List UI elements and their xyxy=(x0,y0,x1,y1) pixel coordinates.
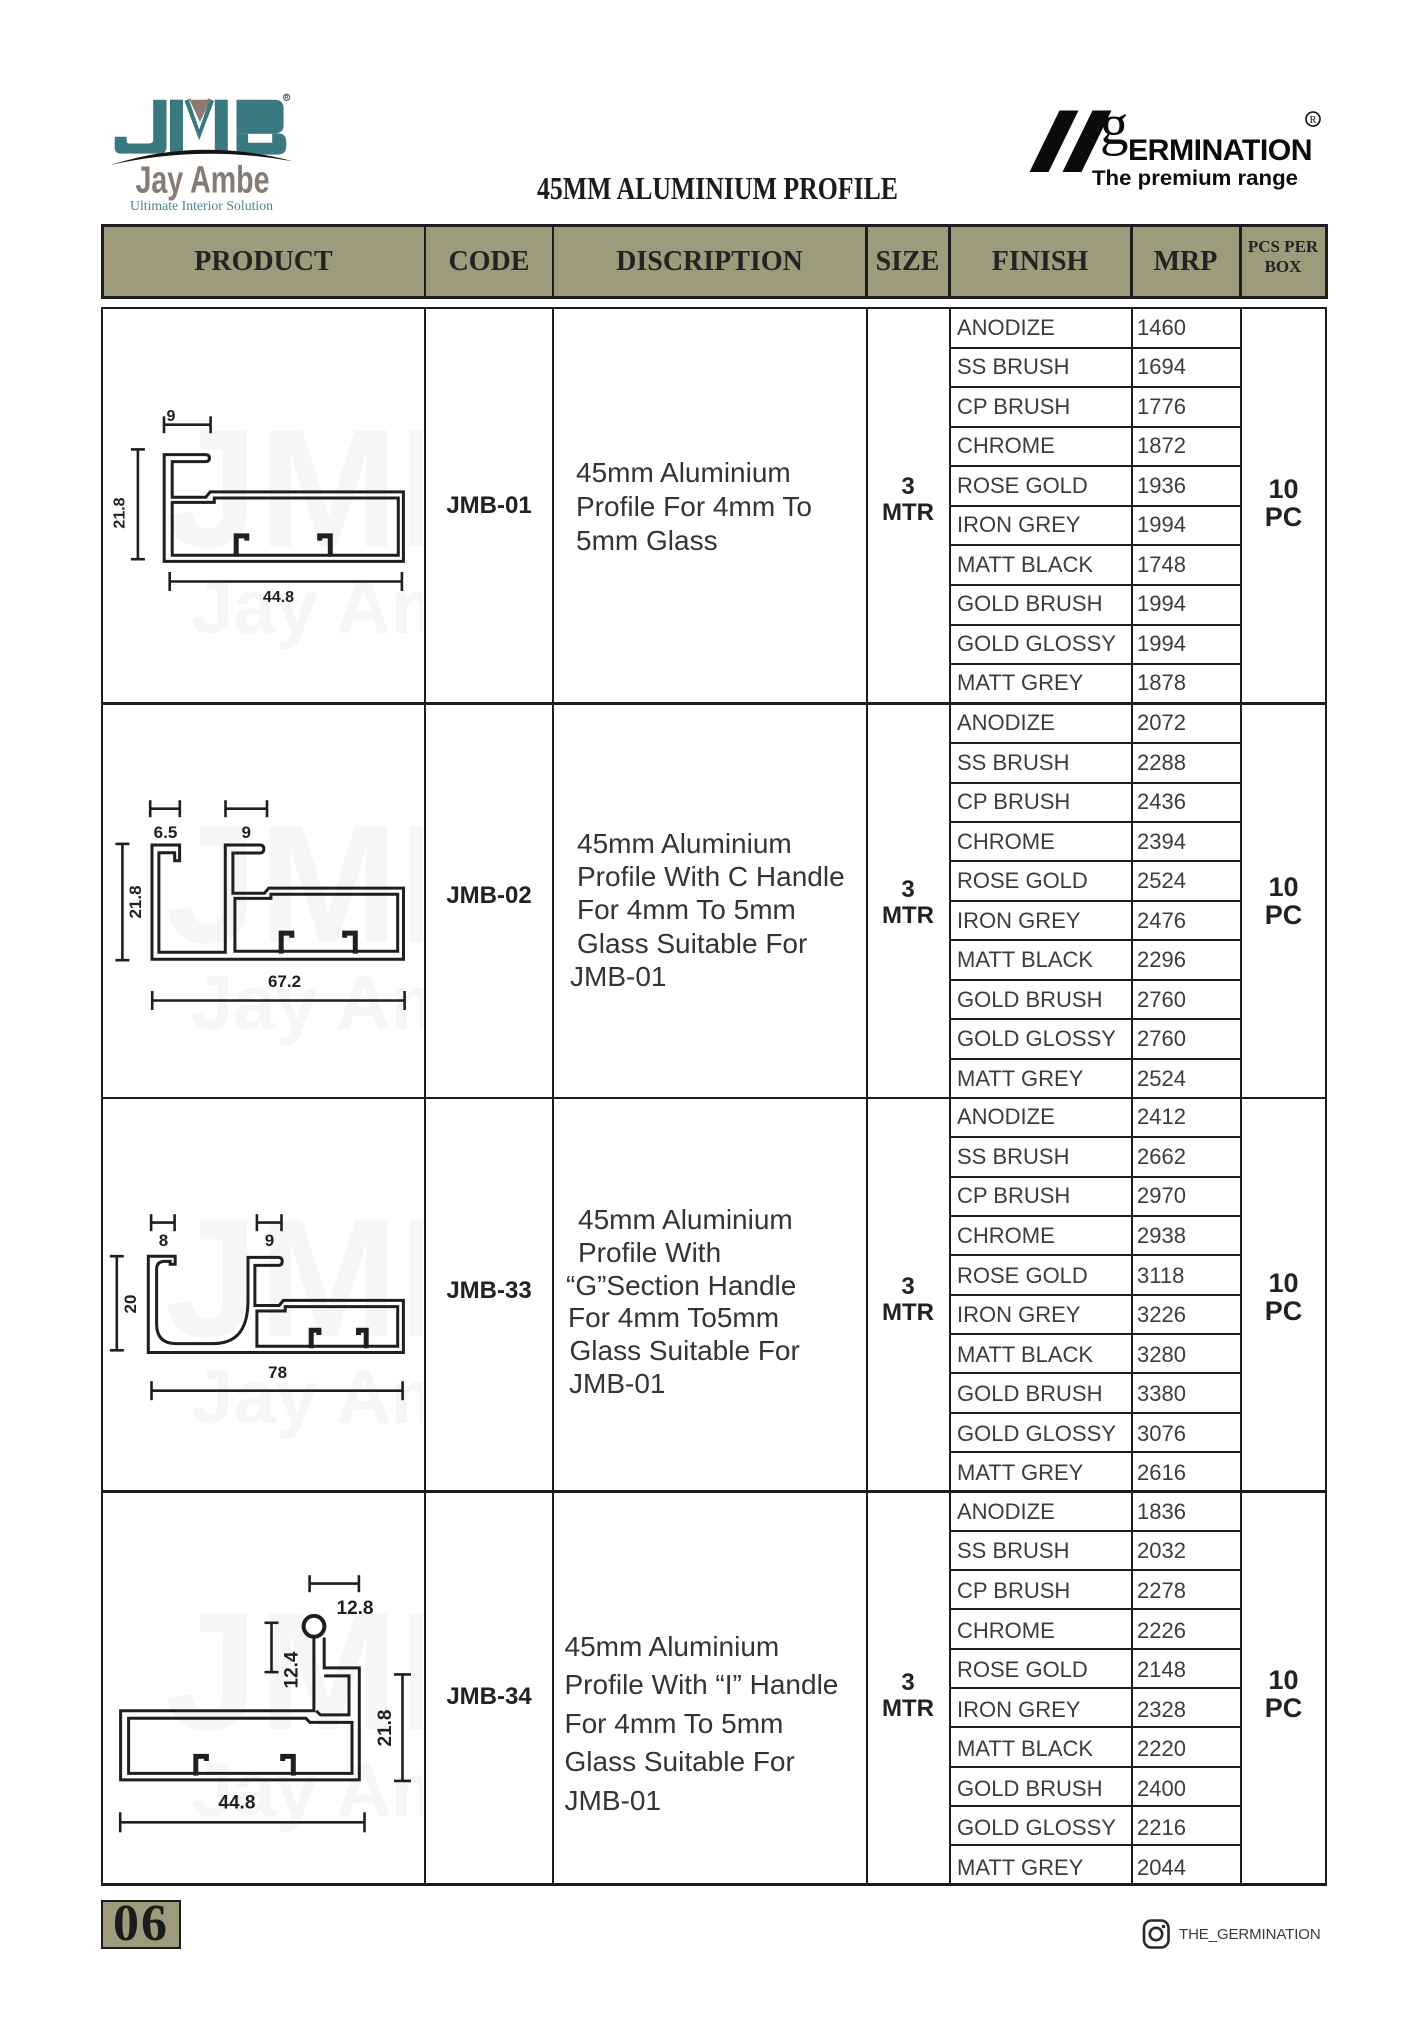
svg-text:Ultimate Interior Solution: Ultimate Interior Solution xyxy=(130,199,273,214)
svg-text:The premium range: The premium range xyxy=(1092,167,1298,190)
svg-text:12.8: 12.8 xyxy=(337,1598,374,1619)
svg-text:21.8: 21.8 xyxy=(112,497,129,528)
svg-text:g: g xyxy=(1100,95,1129,157)
svg-text:R: R xyxy=(285,95,289,101)
svg-text:9: 9 xyxy=(265,1231,274,1250)
svg-text:21.8: 21.8 xyxy=(126,885,145,918)
svg-text:9: 9 xyxy=(241,823,250,842)
svg-text:45MM ALUMINIUM PROFILE: 45MM ALUMINIUM PROFILE xyxy=(537,170,898,206)
svg-text:R: R xyxy=(1309,115,1316,126)
svg-text:21.8: 21.8 xyxy=(375,1710,396,1747)
svg-text:20: 20 xyxy=(121,1295,140,1314)
svg-text:12.4: 12.4 xyxy=(282,1651,303,1688)
svg-text:67.2: 67.2 xyxy=(268,972,301,991)
svg-text:8: 8 xyxy=(159,1231,168,1250)
svg-text:ERMINATION: ERMINATION xyxy=(1128,134,1312,167)
svg-text:6.5: 6.5 xyxy=(154,823,178,842)
svg-text:44.8: 44.8 xyxy=(218,1793,255,1814)
svg-text:78: 78 xyxy=(268,1363,287,1382)
svg-text:44.8: 44.8 xyxy=(263,589,294,606)
svg-text:Jay Ambe: Jay Ambe xyxy=(136,160,270,202)
svg-text:9: 9 xyxy=(167,408,176,425)
